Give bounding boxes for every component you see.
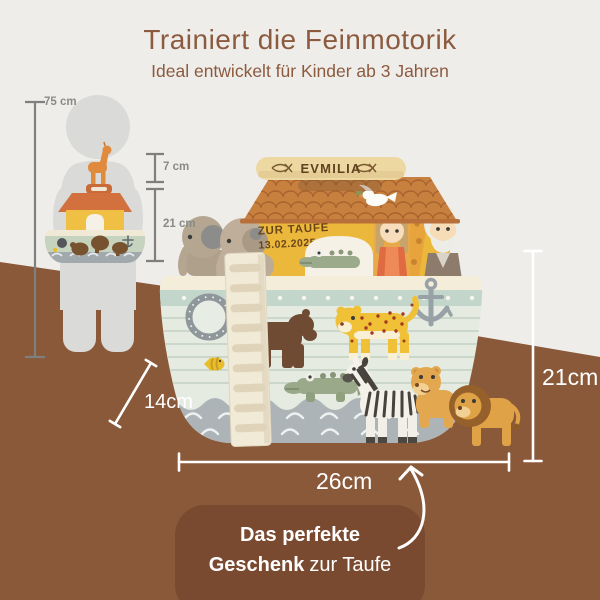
mini-ark [44, 184, 146, 264]
name-plate: EVMILIA [256, 157, 406, 191]
noahs-wife-figure [374, 206, 410, 302]
mini-porthole-icon [57, 238, 67, 248]
dove-icon [354, 185, 397, 208]
engraving-line1: ZUR TAUFE [257, 222, 329, 238]
ichthys-fish-icon [356, 164, 376, 172]
mini-fish-icon [53, 248, 57, 252]
mini-anchor-icon [123, 236, 133, 247]
label-giraffe-height: 7 cm [163, 161, 189, 173]
ichthys-fish-icon [272, 164, 292, 172]
name-plate-text: EVMILIA [300, 161, 361, 176]
label-height-21cm: 21cm [542, 364, 598, 391]
gift-callout-pill: Das perfekte Geschenkzur Taufe [175, 505, 425, 600]
label-width-26cm: 26cm [316, 468, 372, 495]
elephant-figures [182, 216, 274, 278]
giraffe-figure [409, 180, 440, 280]
engraving: ZUR TAUFE 13.02.2025 [257, 222, 330, 252]
engraving-line2: 13.02.2025 [258, 237, 316, 252]
page-title: Trainiert die Feinmotorik [0, 24, 600, 56]
label-depth-14cm: 14cm [144, 391, 193, 414]
noah-figure [420, 205, 466, 306]
ark-roof [238, 177, 463, 224]
page-subtitle: Ideal entwickelt für Kinder ab 3 Jahren [0, 61, 600, 82]
mini-animal-silhouettes [70, 236, 128, 257]
crocodile-in-door [299, 249, 360, 268]
callout-line2-bold: Geschenk [209, 554, 305, 576]
ruler-21cm [146, 189, 164, 261]
callout-line2: Geschenkzur Taufe [175, 554, 425, 577]
anchor-icon [411, 280, 451, 325]
ark-door [305, 236, 373, 278]
label-ark-height: 21 cm [163, 218, 196, 230]
product-image: Das perfekte Geschenkzur Taufe [0, 0, 600, 600]
mini-giraffe-figure [88, 142, 112, 184]
callout-line1: Das perfekte [175, 524, 425, 547]
ruler-7cm [146, 154, 164, 182]
label-child-height: 75 cm [44, 96, 77, 108]
callout-line2-rest: zur Taufe [309, 554, 391, 576]
ark-house [252, 212, 450, 278]
